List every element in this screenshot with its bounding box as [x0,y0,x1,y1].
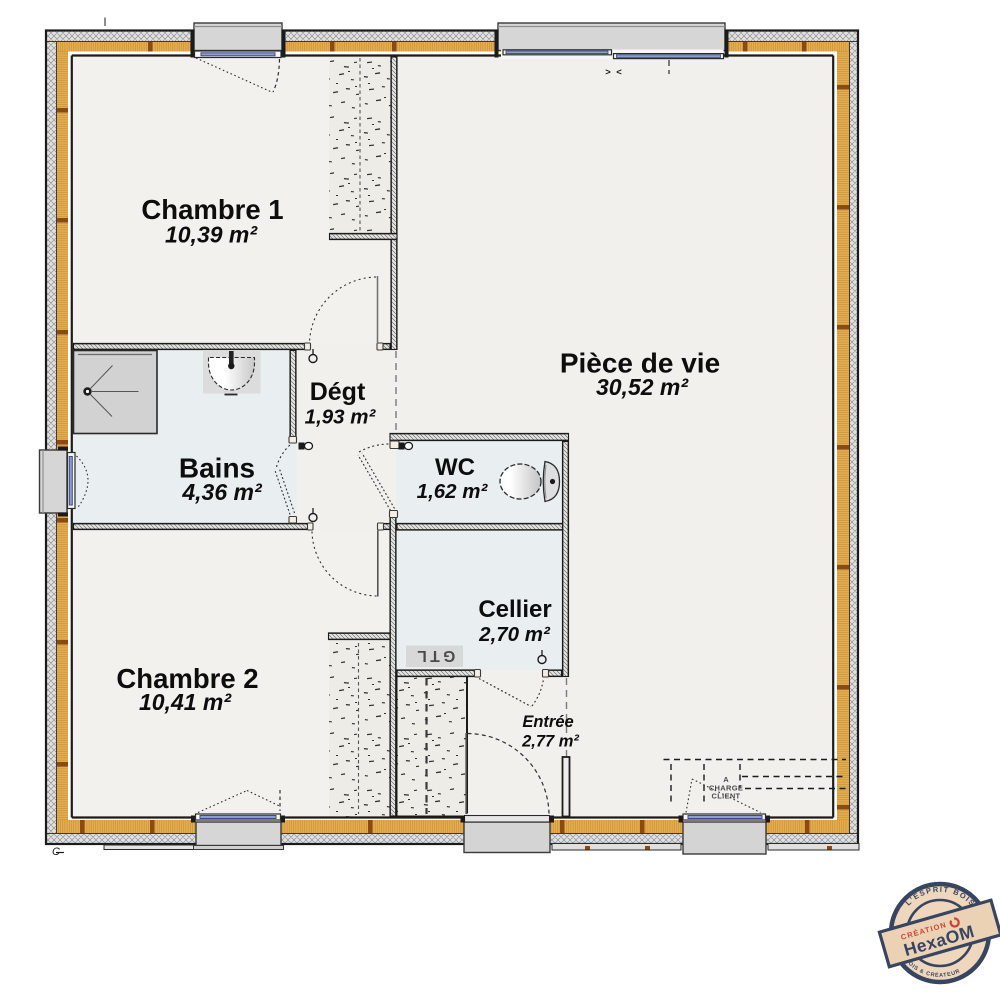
svg-text:1,93 m²: 1,93 m² [305,406,377,429]
svg-text:Entrée: Entrée [522,713,573,731]
svg-text:Dégt: Dégt [310,378,366,406]
svg-text:10,39 m²: 10,39 m² [165,222,258,248]
svg-text:2,70 m²: 2,70 m² [478,623,551,646]
svg-text:Chambre 1: Chambre 1 [141,194,283,225]
svg-text:GTL: GTL [414,647,456,664]
svg-text:4,36 m²: 4,36 m² [181,479,263,505]
svg-text:<: < [616,67,622,78]
svg-text:Cellier: Cellier [478,596,551,623]
svg-text:WC: WC [435,454,475,481]
svg-text:CLIENT: CLIENT [712,792,741,801]
svg-text:>: > [605,67,611,78]
svg-text:2,77 m²: 2,77 m² [521,733,579,751]
svg-text:10,41 m²: 10,41 m² [139,689,232,715]
svg-text:30,52 m²: 30,52 m² [596,374,689,400]
svg-text:1,62 m²: 1,62 m² [417,480,489,503]
